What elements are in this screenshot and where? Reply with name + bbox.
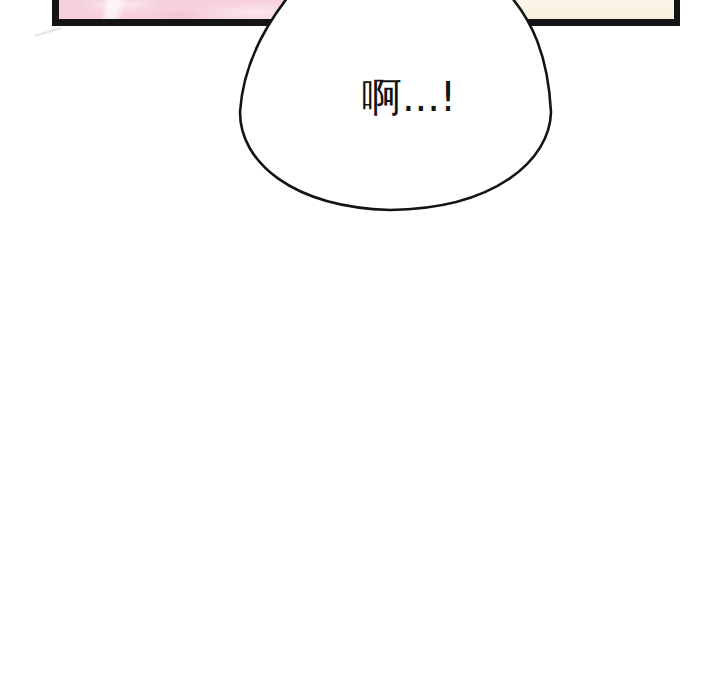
comic-page: 啊...! [0, 0, 720, 700]
speech-bubble-text: 啊...! [347, 74, 471, 120]
